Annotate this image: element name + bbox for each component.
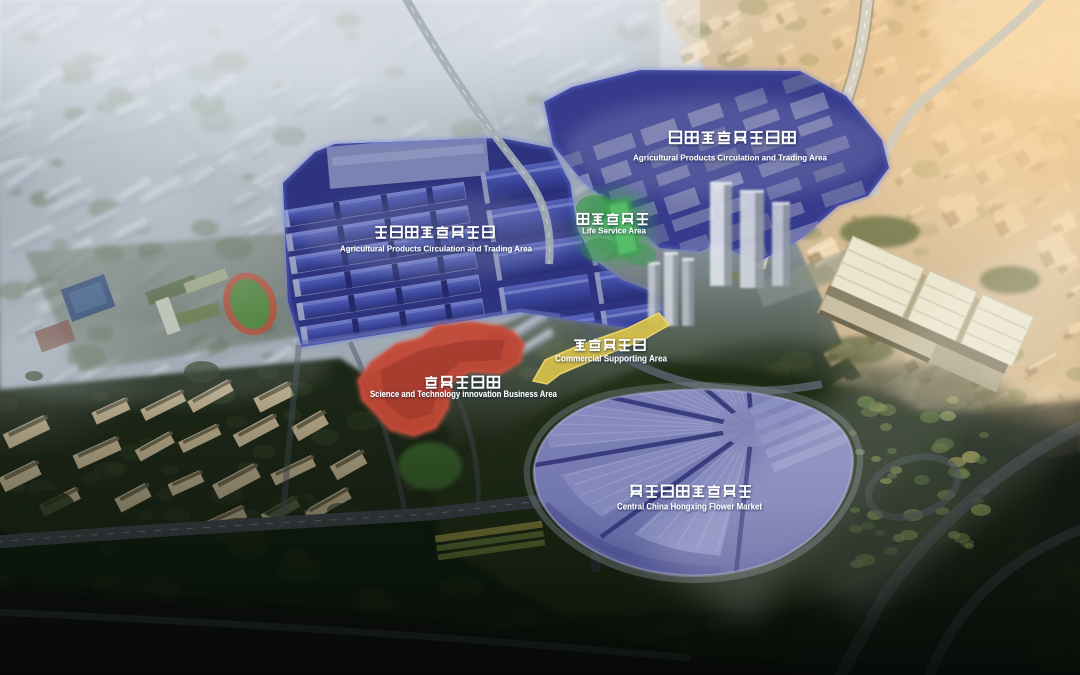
svg-text:Central China Hongxing Flower: Central China Hongxing Flower Market bbox=[617, 502, 762, 512]
svg-text:Agricultural Products Circulat: Agricultural Products Circulation and Tr… bbox=[340, 244, 532, 254]
svg-text:Agricultural Products Circulat: Agricultural Products Circulation and Tr… bbox=[633, 153, 827, 163]
svg-text:Science and Technology innovat: Science and Technology innovation Busine… bbox=[370, 389, 557, 399]
svg-text:Commercial Supporting Area: Commercial Supporting Area bbox=[555, 354, 668, 364]
svg-text:Life Service Area: Life Service Area bbox=[582, 226, 646, 236]
